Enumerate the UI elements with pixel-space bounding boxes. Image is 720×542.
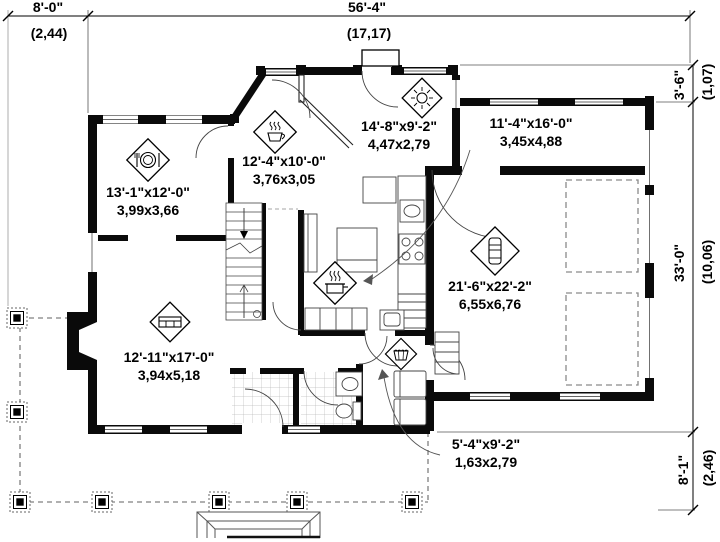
dim-right-mid-meters: (10,06) (698, 240, 716, 284)
room-label-sunroom: 14'-8"x9'-2"4,47x2,79 (361, 117, 437, 153)
sunroom-stoop (362, 50, 399, 66)
room-label-laundry: 5'-4"x9'-2"1,63x2,79 (452, 435, 520, 471)
laundry-fixtures (394, 371, 426, 425)
dim-top-center-meters: (17,17) (347, 24, 391, 42)
dim-top-left-feet: 8'-0" (33, 0, 63, 16)
garage-steps (433, 332, 459, 374)
dim-right-top-feet: 3'-6" (670, 70, 688, 100)
fireplace (67, 312, 97, 370)
foyer-tile-floor (232, 372, 293, 425)
family-room-furniture (304, 214, 377, 272)
coffee-icon (254, 111, 296, 153)
dim-right-top-meters: (1,07) (698, 64, 716, 101)
dim-right-mid-feet: 33'-0" (670, 244, 688, 282)
dim-top-left-meters: (2,44) (31, 24, 68, 42)
dim-right-bot-feet: 8'-1" (674, 455, 692, 485)
dining-icon (127, 139, 169, 181)
room-label-living: 12'-11"x17'-0"3,94x5,18 (124, 348, 215, 384)
room-label-upper-right: 11'-4"x16'-0"3,45x4,88 (490, 114, 573, 150)
room-label-dining: 13'-1"x12'-0"3,99x3,66 (106, 183, 190, 219)
bath-fixtures (336, 372, 362, 420)
dim-top-center-feet: 56'-4" (348, 0, 386, 16)
dim-right-bot-meters: (2,46) (699, 450, 717, 487)
staircase (226, 203, 298, 320)
room-label-garage: 21'-6"x22'-2"6,55x6,76 (448, 277, 532, 313)
garage-parking-spaces (566, 180, 638, 385)
floor-plan-drawing (0, 0, 720, 542)
sun-icon (402, 78, 442, 118)
sofa-icon (150, 302, 190, 342)
entry-angled-wall (232, 74, 263, 121)
room-label-breakfast: 12'-4"x10'-0"3,76x3,05 (242, 152, 326, 188)
sunroom-glass-walls (299, 75, 353, 148)
floor-plan: 8'-0" (2,44) 56'-4" (17,17) 3'-6" (1,07)… (0, 0, 720, 542)
porch-steps (197, 512, 320, 538)
